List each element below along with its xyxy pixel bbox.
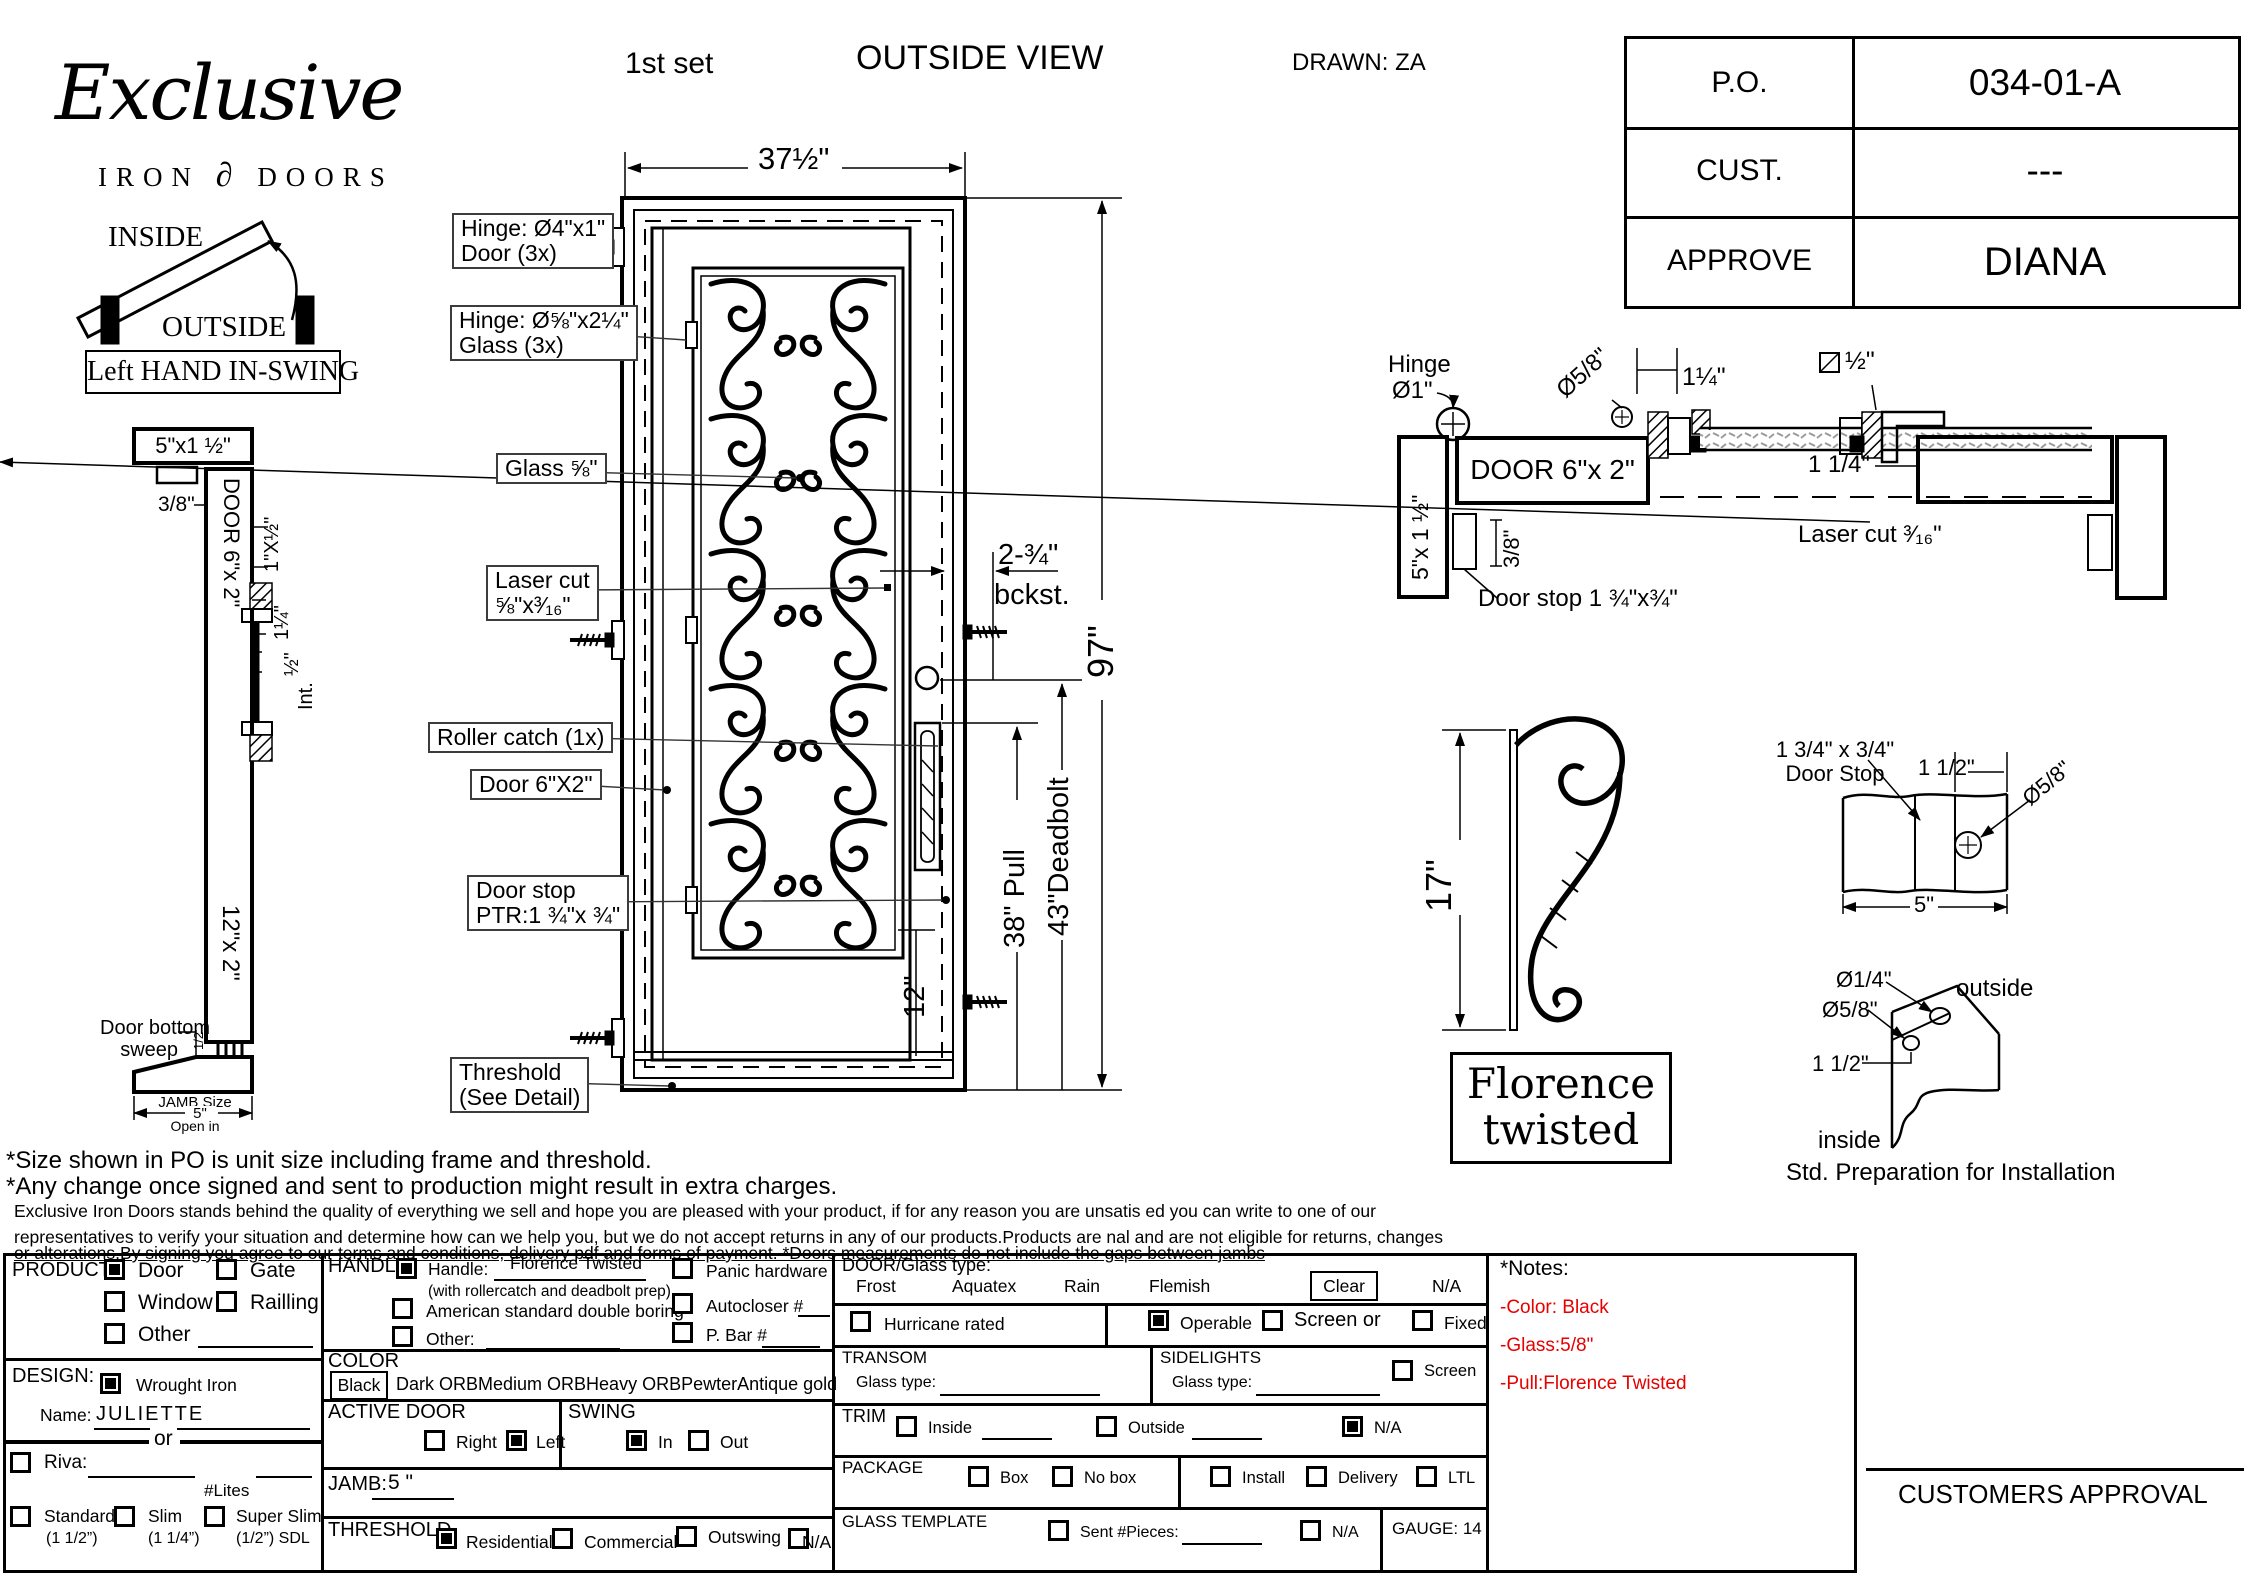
plan-door-size: DOOR 6"x 2" (1457, 455, 1648, 485)
superslim-checkbox[interactable] (204, 1506, 225, 1527)
plan-sq-half-dim: ½" (1845, 348, 1875, 375)
view-title: OUTSIDE VIEW (856, 40, 1103, 77)
twelve-dim: 12" (900, 975, 931, 1018)
glass-type-label: DOOR/Glass type: (842, 1256, 991, 1275)
height-dim: 97" (1082, 621, 1121, 682)
active-door-label: ACTIVE DOOR (328, 1402, 466, 1424)
product-window-checkbox[interactable] (104, 1291, 125, 1312)
po-label: P.O. (1627, 67, 1852, 99)
note-line-1: *Size shown in PO is unit size including… (6, 1148, 652, 1174)
deadbolt-dim: 43"Deadbolt (1044, 777, 1075, 936)
trim-na-checkbox[interactable] (1342, 1416, 1363, 1437)
prep-detail-art (1862, 982, 1999, 1148)
active-left-label: Left (536, 1433, 565, 1452)
riva-checkbox[interactable] (10, 1452, 31, 1473)
threshold-form-label: THRESHOLD (328, 1520, 451, 1542)
prep-outside-label: outside (1956, 976, 2033, 1002)
color-options: Dark ORB Medium ORB Heavy ORB Pewter Ant… (396, 1375, 830, 1394)
notes-glass: -Glass:5/8" (1500, 1336, 1593, 1357)
autocloser-label: Autocloser # (706, 1297, 803, 1316)
trim-inside-checkbox[interactable] (896, 1416, 917, 1437)
sweep-label-2: sweep (100, 1040, 178, 1062)
threshold-label: Threshold(See Detail) (450, 1057, 589, 1113)
note-line-2: *Any change once signed and sent to prod… (6, 1174, 837, 1200)
left-dim-c: ½" (282, 652, 304, 676)
threshold-residential-checkbox[interactable] (436, 1528, 457, 1549)
prep-caption: Std. Preparation for Installation (1786, 1160, 2116, 1186)
operable-checkbox[interactable] (1148, 1310, 1169, 1331)
package-box-label: Box (1000, 1470, 1028, 1488)
standard-label: Standard (44, 1507, 115, 1526)
lites-field[interactable] (256, 1476, 312, 1478)
glass-flemish[interactable]: Flemish (1149, 1277, 1210, 1296)
slim-sub: (1 1/4”) (148, 1530, 200, 1547)
color-option-mediumorb[interactable]: Medium ORB (478, 1375, 586, 1394)
hinge-glass-label: Hinge: Ø⅝"x2¼"Glass (3x) (450, 305, 638, 361)
active-right-checkbox[interactable] (424, 1430, 445, 1451)
logo-doors: DOORS (257, 162, 394, 192)
head-offset-dim: 3/8" (158, 494, 195, 517)
stop-112-dim: 1 1/2" (1918, 756, 1975, 780)
handle-other-label: Other: (426, 1330, 475, 1349)
po-value: 034-01-A (1852, 63, 2238, 103)
trim-outside-checkbox[interactable] (1096, 1416, 1117, 1437)
product-other-label: Other (138, 1324, 191, 1347)
handle-item-label: Handle: (428, 1260, 488, 1279)
plan-114-dim: 1 1/4" (1808, 452, 1870, 478)
handle-other-checkbox[interactable] (392, 1326, 413, 1347)
glass-frost[interactable]: Frost (856, 1277, 896, 1296)
slim-checkbox[interactable] (114, 1506, 135, 1527)
glass-template-pieces-field[interactable] (1182, 1543, 1262, 1545)
riva-label: Riva: (44, 1453, 87, 1474)
design-wrought-label: Wrought Iron (136, 1376, 237, 1395)
american-boring-label: American standard double boring (426, 1302, 684, 1321)
panic-checkbox[interactable] (672, 1258, 693, 1279)
pull-name-box: Florence twisted (1450, 1052, 1672, 1164)
hurricane-checkbox[interactable] (850, 1311, 871, 1332)
threshold-residential-label: Residential (466, 1533, 553, 1552)
color-option-darkorb[interactable]: Dark ORB (396, 1375, 478, 1394)
screen-or-checkbox[interactable] (1262, 1310, 1283, 1331)
notes-color: -Color: Black (1500, 1298, 1609, 1319)
handle-checkbox[interactable] (396, 1258, 417, 1279)
trim-outside-label: Outside (1128, 1420, 1185, 1438)
standard-sub: (1 1/2”) (46, 1530, 98, 1547)
swing-caption: Left HAND IN-SWING (85, 350, 341, 394)
order-drawing-sheet: Exclusive IRON ∂ DOORS 1st set OUTSIDE V… (0, 0, 2252, 1576)
fixed-checkbox[interactable] (1412, 1310, 1433, 1331)
swing-in-checkbox[interactable] (626, 1430, 647, 1451)
glass-na[interactable]: N/A (1432, 1277, 1461, 1296)
approve-label: APPROVE (1627, 245, 1852, 277)
product-other-field[interactable] (198, 1346, 313, 1348)
product-railing-checkbox[interactable] (216, 1291, 237, 1312)
sidelights-label: SIDELIGHTS (1160, 1349, 1261, 1367)
autocloser-checkbox[interactable] (672, 1293, 693, 1314)
product-door-checkbox[interactable] (104, 1259, 125, 1280)
pbar-checkbox[interactable] (672, 1322, 693, 1343)
design-name-field[interactable] (94, 1428, 310, 1430)
jamb-head-dim: 5"x1 ½" (134, 434, 252, 458)
product-railing-label: Railling (250, 1292, 319, 1315)
prep-112-dim: 1 1/2" (1812, 1052, 1869, 1076)
color-option-heavyorb[interactable]: Heavy ORB (586, 1375, 681, 1394)
pbar-label: P. Bar # (706, 1326, 767, 1345)
logo-ornament-icon: ∂ (216, 157, 242, 194)
pull-dim: 38" Pull (1000, 849, 1031, 948)
gauge-label: GAUGE: 14 (1392, 1520, 1482, 1538)
sidelights-screen-checkbox[interactable] (1392, 1360, 1413, 1381)
trim-na-label: N/A (1374, 1420, 1402, 1438)
prep-dia14-label: Ø1/4" (1836, 968, 1892, 992)
logo-script: Exclusive (55, 52, 402, 134)
slim-label: Slim (148, 1507, 182, 1526)
glass-clear-option[interactable]: Clear (1310, 1271, 1378, 1301)
handle-value[interactable]: Florence Twisted (510, 1254, 642, 1273)
door-size-label: Door 6"X2" (470, 769, 602, 800)
notes-pull: -Pull:Florence Twisted (1500, 1374, 1687, 1395)
note-para-1: Exclusive Iron Doors stands behind the q… (14, 1202, 1376, 1221)
glass-template-label: GLASS TEMPLATE (842, 1514, 987, 1532)
roller-label: Roller catch (1x) (428, 722, 613, 753)
product-label: PRODUCT: (12, 1260, 114, 1282)
product-gate-label: Gate (250, 1260, 296, 1283)
glass-template-sent-label: Sent #Pieces: (1080, 1524, 1179, 1541)
operable-label: Operable (1180, 1314, 1252, 1333)
swing-in-label: In (658, 1433, 673, 1452)
threshold-commercial-checkbox[interactable] (552, 1528, 573, 1549)
fixed-label: Fixed (1444, 1314, 1487, 1333)
sweep-label-1: Door bottom (100, 1018, 178, 1040)
sidelights-glass-field[interactable] (1256, 1394, 1380, 1396)
design-or-label: or (150, 1428, 177, 1451)
sidelights-screen-label: Screen (1424, 1363, 1476, 1381)
autocloser-field[interactable] (798, 1315, 830, 1317)
threshold-commercial-label: Commercial (584, 1533, 677, 1552)
jamb-label: JAMB: (328, 1474, 387, 1496)
package-ltl-label: LTL (1448, 1470, 1475, 1488)
product-door-label: Door (138, 1260, 184, 1283)
sidelights-glass-label: Glass type: (1172, 1374, 1252, 1391)
package-label: PACKAGE (842, 1459, 923, 1477)
approval-signature-line[interactable] (1866, 1468, 2244, 1471)
customers-approval-label: CUSTOMERS APPROVAL (1898, 1480, 2208, 1508)
product-window-label: Window (138, 1292, 213, 1315)
prep-dia58-label: Ø5/8" (1822, 998, 1878, 1022)
active-left-checkbox[interactable] (506, 1430, 527, 1451)
approval-table: P.O. 034-01-A CUST. --- APPROVE DIANA (1624, 36, 2241, 309)
pbar-field[interactable] (762, 1346, 820, 1348)
color-option-antiquegold[interactable]: Antique gold (737, 1375, 837, 1394)
package-install-label: Install (1242, 1470, 1285, 1488)
cust-label: CUST. (1627, 155, 1852, 187)
product-other-checkbox[interactable] (104, 1323, 125, 1344)
left-bottom-size: 12"x 2" (217, 905, 243, 981)
hurricane-label: Hurricane rated (884, 1315, 1005, 1334)
package-delivery-checkbox[interactable] (1306, 1466, 1327, 1487)
color-label: COLOR (328, 1351, 399, 1373)
plan-laser-label: Laser cut ³⁄₁₆" (1798, 522, 1942, 548)
plan-doorstop-label: Door stop 1 ¾"x¾" (1478, 586, 1678, 612)
set-label: 1st set (625, 48, 713, 80)
prep-inside-label: inside (1818, 1128, 1881, 1154)
sweep-half-dim: 1/2 (192, 1032, 206, 1050)
glass-rain[interactable]: Rain (1064, 1277, 1100, 1296)
trim-label: TRIM (842, 1407, 886, 1426)
threshold-na-label: N/A (802, 1533, 831, 1552)
left-door-size: DOOR 6"x 2" (219, 478, 243, 607)
doorstop-label: Door stopPTR:1 ¾"x ¾" (467, 875, 629, 931)
american-boring-checkbox[interactable] (392, 1298, 413, 1319)
transom-glass-label: Glass type: (856, 1374, 936, 1391)
color-black-option[interactable]: Black (330, 1371, 388, 1400)
backset-dim-1: 2-¾" (998, 540, 1058, 571)
trim-inside-label: Inside (928, 1420, 972, 1438)
swing-label: SWING (568, 1402, 636, 1424)
handle-field[interactable] (494, 1279, 646, 1281)
screen-or-label: Screen or (1294, 1310, 1381, 1332)
trim-inside-field[interactable] (982, 1438, 1052, 1440)
design-wrought-checkbox[interactable] (100, 1373, 121, 1394)
drawn-by: DRAWN: ZA (1292, 50, 1426, 76)
plan-125-dim: 1¼" (1682, 364, 1726, 391)
handle-sub: (with rollercatch and deadbolt prep) (428, 1284, 671, 1301)
left-int-label: Int. (296, 682, 318, 710)
stop-5-dim: 5" (1910, 893, 1938, 917)
color-option-pewter[interactable]: Pewter (681, 1375, 737, 1394)
panic-label: Panic hardware (706, 1262, 828, 1281)
notes-title: *Notes: (1500, 1258, 1569, 1281)
package-ltl-checkbox[interactable] (1416, 1466, 1437, 1487)
cust-value: --- (1852, 151, 2238, 191)
glass-aquatex[interactable]: Aquatex (952, 1277, 1016, 1296)
package-box-checkbox[interactable] (968, 1466, 989, 1487)
jamb-field[interactable] (372, 1498, 454, 1500)
swing-out-checkbox[interactable] (688, 1430, 709, 1451)
package-nobox-checkbox[interactable] (1052, 1466, 1073, 1487)
riva-field[interactable] (88, 1476, 195, 1478)
design-name-label: Name: (40, 1406, 92, 1425)
swing-inside-label: INSIDE (108, 222, 203, 253)
superslim-sub: (1/2”) SDL (236, 1530, 310, 1547)
superslim-label: Super Slim (236, 1507, 322, 1526)
threshold-outswing-checkbox[interactable] (676, 1526, 697, 1547)
package-nobox-label: No box (1084, 1470, 1136, 1488)
plan-hinge-label-2: Ø1" (1392, 378, 1433, 404)
backset-dim-2: bckst. (994, 580, 1070, 611)
approve-value: DIANA (1852, 241, 2238, 284)
design-label: DESIGN: (12, 1366, 94, 1388)
lites-label: #Lites (204, 1482, 249, 1500)
stop-size-label-2: Door Stop (1750, 762, 1920, 786)
transom-glass-field[interactable] (940, 1394, 1100, 1396)
left-dim-a: 1"X½" (262, 517, 284, 572)
jamb-value[interactable]: 5 " (388, 1472, 413, 1495)
swing-outside-label: OUTSIDE (162, 312, 286, 343)
swing-out-label: Out (720, 1433, 748, 1452)
handle-other-field[interactable] (486, 1348, 620, 1350)
package-install-checkbox[interactable] (1210, 1466, 1231, 1487)
laser-label: Laser cut⅝"x³⁄₁₆" (486, 565, 599, 621)
standard-checkbox[interactable] (10, 1506, 31, 1527)
transom-label: TRANSOM (842, 1349, 927, 1367)
left-dim-b: 1¼" (272, 605, 294, 640)
plan-offset-dim: 3/8" (1500, 530, 1524, 568)
active-right-label: Right (456, 1433, 497, 1452)
glass-template-na-label: N/A (1332, 1524, 1359, 1541)
glass-label: Glass ⅝" (496, 453, 607, 484)
hinge-door-label: Hinge: Ø4"x1"Door (3x) (452, 213, 614, 269)
glass-template-na-checkbox[interactable] (1300, 1520, 1321, 1541)
plan-hinge-label-1: Hinge (1388, 352, 1451, 378)
pull-height-dim: 17" (1420, 859, 1459, 912)
trim-outside-field[interactable] (1192, 1438, 1262, 1440)
plan-jamb-size: 5"x 1 ½" (1408, 495, 1433, 580)
threshold-outswing-label: Outswing (708, 1528, 781, 1547)
pull-detail-art (1442, 719, 1622, 1030)
logo-iron: IRON (98, 162, 200, 192)
glass-template-sent-checkbox[interactable] (1048, 1520, 1069, 1541)
design-name-value[interactable]: JULIETTE (96, 1404, 204, 1426)
elev-width-dim: 37½" (754, 142, 833, 175)
stop-size-label-1: 1 3/4" x 3/4" (1750, 738, 1920, 762)
jamb-size-3: Open in (160, 1119, 230, 1134)
elevation-art (562, 152, 1122, 1090)
product-gate-checkbox[interactable] (216, 1259, 237, 1280)
package-delivery-label: Delivery (1338, 1470, 1398, 1488)
